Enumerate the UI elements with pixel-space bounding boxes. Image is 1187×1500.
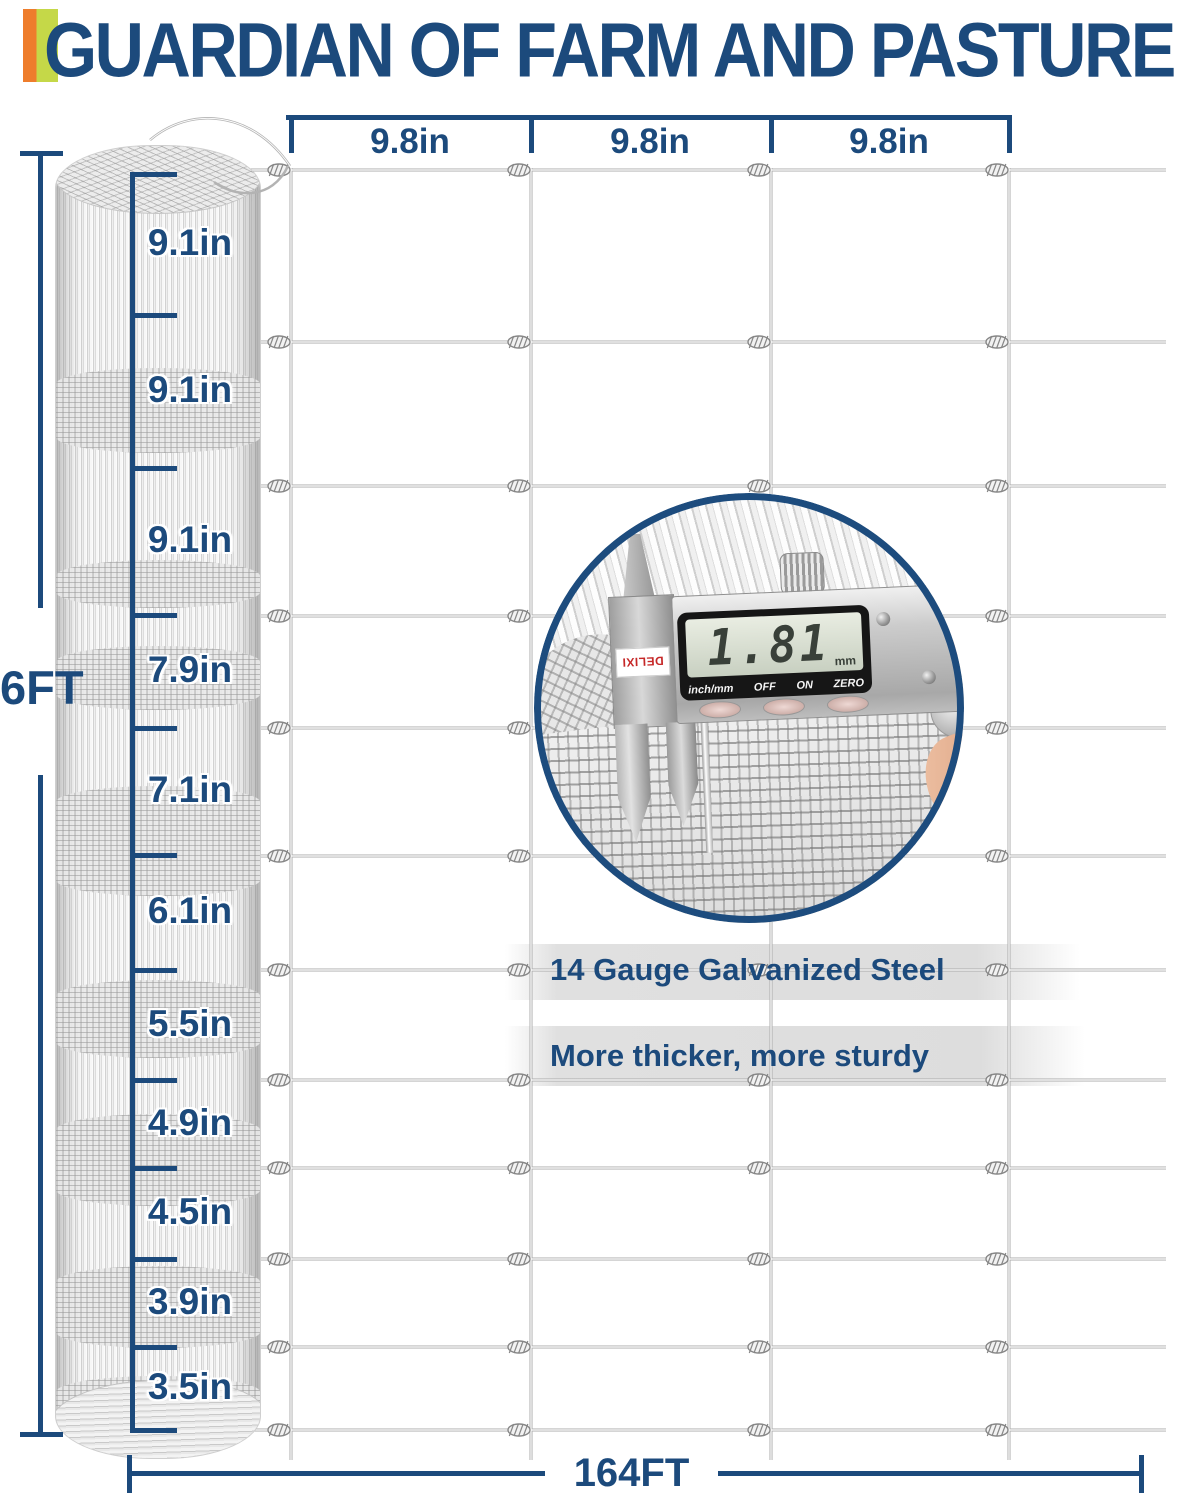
wire-knot [986, 336, 1008, 348]
wire-knot [986, 610, 1008, 622]
segment-label: 9.1in [138, 369, 242, 411]
page-title: GUARDIAN OF FARM AND PASTURE [44, 6, 1174, 94]
segment-tick [130, 1257, 177, 1262]
wire-knot [268, 1424, 290, 1436]
wire-knot [986, 1424, 1008, 1436]
segment-label: 4.9in [138, 1102, 242, 1144]
segment-label: 5.5in [138, 1003, 242, 1045]
segment-tick [130, 1345, 177, 1350]
top-dimension-label: 9.8in [330, 122, 490, 162]
wire-knot [508, 480, 530, 492]
wire-knot [508, 1074, 530, 1086]
feature-text: More thicker, more sturdy [550, 1038, 929, 1074]
inset-circle: 1.81 mm inch/mm OFF ON ZERO DEL [534, 493, 964, 923]
segment-tick [130, 968, 177, 973]
top-dimension-label: 9.8in [809, 122, 969, 162]
segment-label: 9.1in [138, 519, 242, 561]
segment-tick [130, 613, 177, 618]
wire-knot [508, 336, 530, 348]
product-infographic: GUARDIAN OF FARM AND PASTURE 9.8in 9.8in… [0, 0, 1187, 1500]
wire-knot [986, 850, 1008, 862]
wire-knot [268, 850, 290, 862]
segment-label: 7.1in [138, 769, 242, 811]
wire-knot [748, 1074, 770, 1086]
segment-label: 3.5in [138, 1366, 242, 1408]
segment-label: 6.1in [138, 890, 242, 932]
segment-tick [130, 726, 177, 731]
roll-band [56, 560, 260, 608]
wire-knot [986, 1341, 1008, 1353]
length-dimension-cap-right [1139, 1455, 1144, 1493]
wire-knot [508, 164, 530, 176]
segment-tick [130, 1166, 177, 1171]
height-dimension-line [38, 775, 43, 1435]
wire-knot [508, 850, 530, 862]
segment-tick [130, 466, 177, 471]
top-dimension-tick [1007, 115, 1012, 153]
top-dimension-tick [289, 115, 294, 153]
height-label: 6FT [0, 660, 86, 715]
top-dimension-label: 9.8in [570, 122, 730, 162]
wire-knot [508, 1341, 530, 1353]
wire-knot [508, 1424, 530, 1436]
wire-knot [268, 480, 290, 492]
length-label: 164FT [545, 1451, 718, 1496]
wire-knot [508, 1162, 530, 1174]
segment-label: 4.5in [138, 1191, 242, 1233]
wire-knot [268, 336, 290, 348]
wire-knot [986, 1162, 1008, 1174]
inset-ring [534, 493, 964, 923]
segment-tick [130, 313, 177, 318]
wire-knot [748, 480, 770, 492]
wire-knot [268, 610, 290, 622]
segment-tick [130, 853, 177, 858]
length-dimension-line [129, 1471, 545, 1476]
wire-knot [268, 964, 290, 976]
wire-knot [268, 1162, 290, 1174]
top-dimension-tick [769, 115, 774, 153]
segment-tick [130, 1078, 177, 1083]
top-dimension-line [286, 115, 1012, 120]
wire-knot [748, 336, 770, 348]
segment-label: 3.9in [138, 1281, 242, 1323]
wire-knot [268, 1253, 290, 1265]
wire-knot [986, 722, 1008, 734]
height-dimension-line [38, 153, 43, 608]
wire-knot [748, 1162, 770, 1174]
wire-knot [986, 480, 1008, 492]
wire-knot [986, 1074, 1008, 1086]
wire-knot [268, 1341, 290, 1353]
wire-knot [508, 722, 530, 734]
wire-knot [748, 164, 770, 176]
segment-label: 7.9in [138, 649, 242, 691]
wire-knot [986, 164, 1008, 176]
segment-tick [130, 172, 177, 177]
wire-knot [748, 1341, 770, 1353]
wire-knot [508, 1253, 530, 1265]
wire-knot [986, 1253, 1008, 1265]
wire-knot [508, 610, 530, 622]
height-dimension-cap-bottom [20, 1432, 63, 1437]
wire-knot [748, 1253, 770, 1265]
wire-knot [748, 1424, 770, 1436]
feature-text: 14 Gauge Galvanized Steel [550, 952, 945, 988]
segment-tick [130, 1428, 177, 1433]
segment-dimension-line [130, 174, 135, 1432]
top-dimension-tick [529, 115, 534, 153]
length-dimension-line [718, 1471, 1143, 1476]
wire-knot [986, 964, 1008, 976]
wire-knot [268, 1074, 290, 1086]
segment-label: 9.1in [138, 222, 242, 264]
wire-knot [508, 964, 530, 976]
wire-knot [268, 722, 290, 734]
